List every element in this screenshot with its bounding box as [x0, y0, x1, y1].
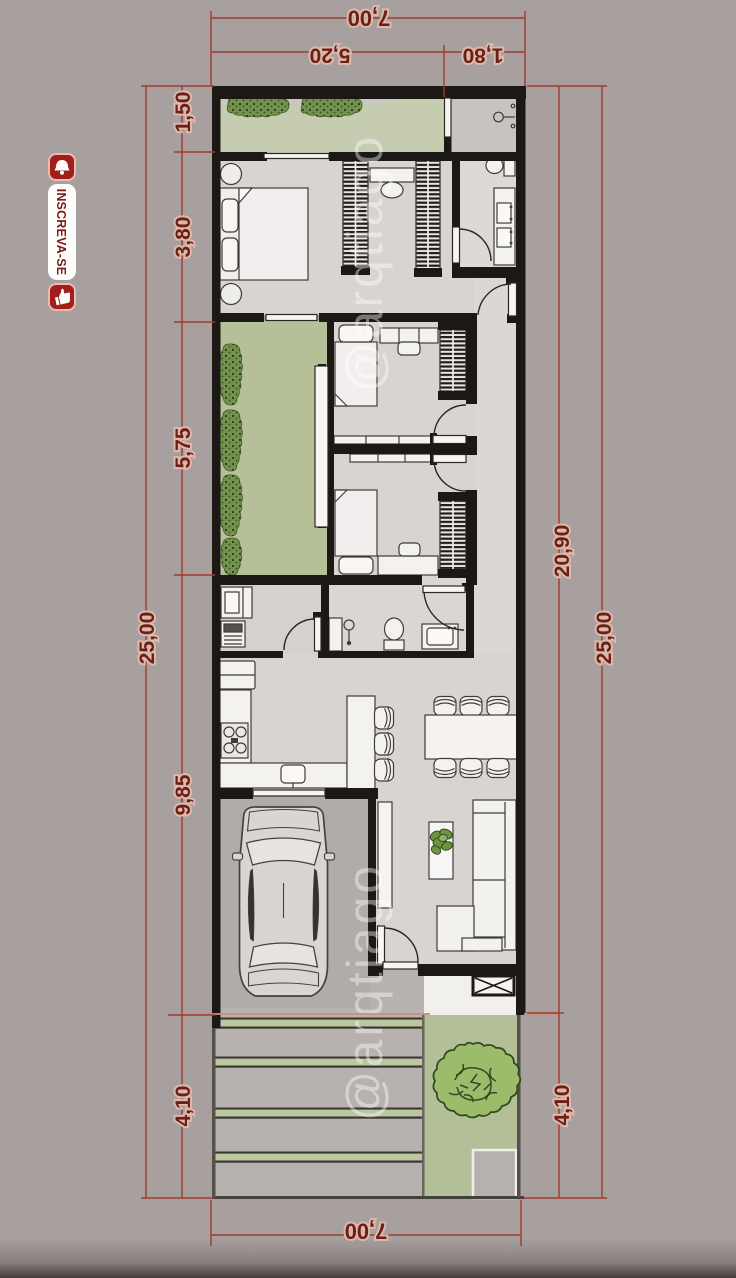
svg-text:1,50: 1,50 [172, 92, 195, 133]
svg-text:4,10: 4,10 [172, 1086, 195, 1127]
svg-text:4,10: 4,10 [551, 1085, 574, 1126]
svg-text:5,20: 5,20 [310, 44, 351, 67]
svg-text:25,00: 25,00 [136, 612, 159, 665]
svg-text:25,00: 25,00 [593, 612, 616, 665]
svg-text:1,80: 1,80 [463, 44, 504, 67]
svg-text:20,90: 20,90 [551, 525, 574, 578]
svg-text:3,80: 3,80 [172, 217, 195, 258]
svg-text:7,00: 7,00 [348, 6, 391, 31]
svg-text:5,75: 5,75 [172, 427, 195, 468]
svg-text:INSCREVA-SE: INSCREVA-SE [54, 189, 68, 276]
svg-text:@arqtiago: @arqtiago [337, 134, 393, 392]
svg-text:9,85: 9,85 [172, 774, 195, 815]
svg-text:@arqtiago: @arqtiago [337, 863, 393, 1121]
